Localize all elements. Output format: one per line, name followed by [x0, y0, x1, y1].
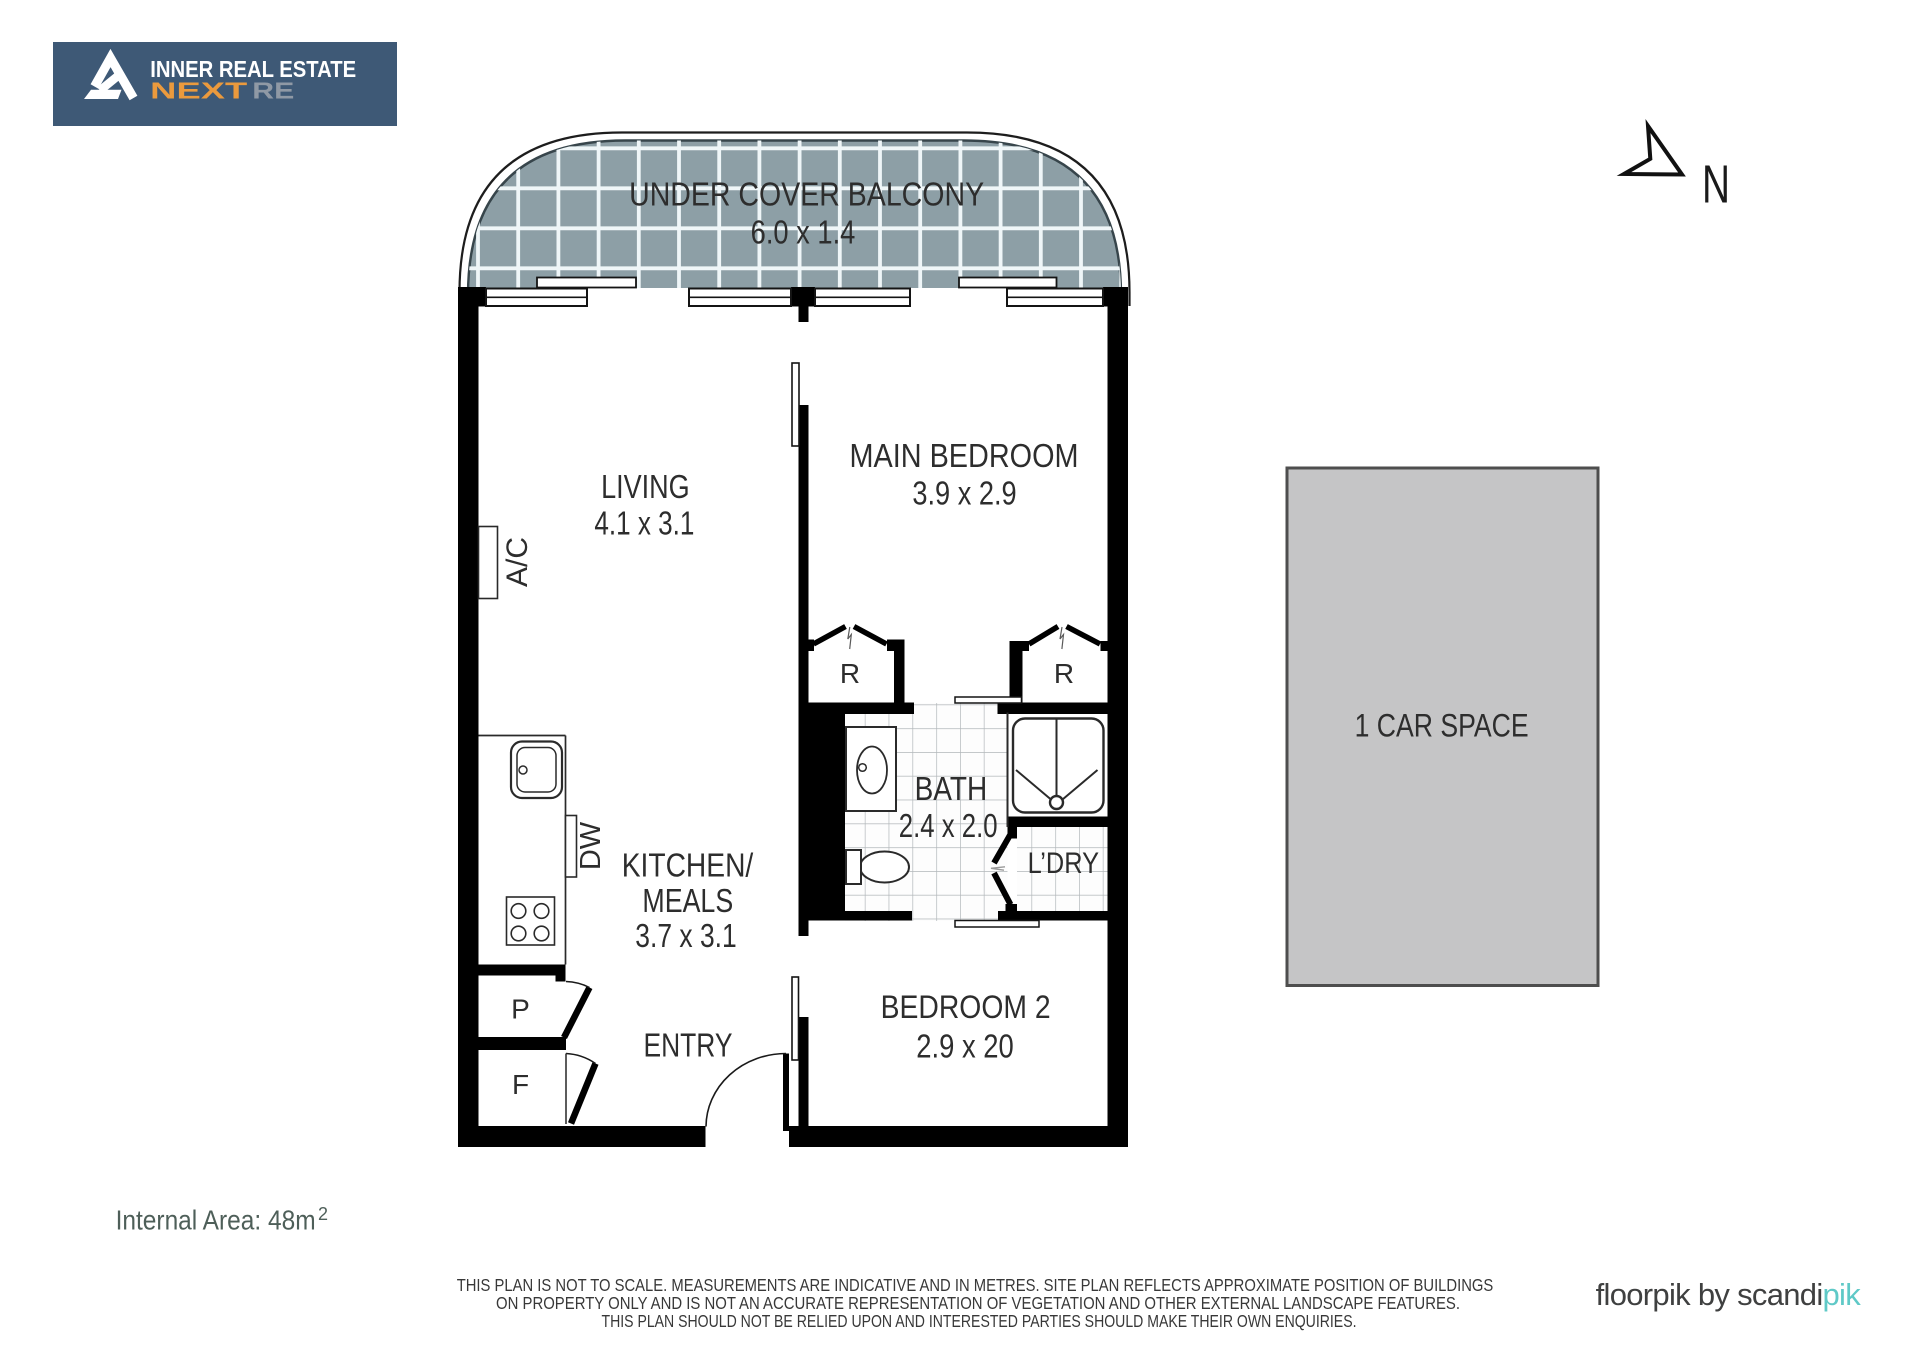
svg-text:R: R: [840, 658, 860, 689]
svg-text:4.1 x 3.1: 4.1 x 3.1: [594, 504, 694, 541]
svg-text:R: R: [1054, 658, 1074, 689]
svg-text:ON PROPERTY ONLY AND IS NOT AN: ON PROPERTY ONLY AND IS NOT AN ACCURATE …: [496, 1293, 1460, 1313]
svg-text:3.9 x 2.9: 3.9 x 2.9: [912, 474, 1016, 511]
svg-text:A/C: A/C: [501, 537, 534, 587]
svg-text:F: F: [512, 1069, 529, 1100]
svg-text:LIVING: LIVING: [601, 468, 690, 505]
svg-text:BATH: BATH: [915, 770, 988, 807]
svg-text:RE: RE: [252, 78, 294, 104]
svg-text:BEDROOM 2: BEDROOM 2: [881, 989, 1051, 1025]
svg-text:1 CAR SPACE: 1 CAR SPACE: [1355, 708, 1529, 744]
svg-text:P: P: [511, 993, 530, 1024]
svg-text:floorpik by scandipik: floorpik by scandipik: [1596, 1277, 1862, 1312]
svg-text:MAIN BEDROOM: MAIN BEDROOM: [850, 437, 1079, 474]
svg-text:DW: DW: [575, 821, 607, 870]
svg-text:3.7 x 3.1: 3.7 x 3.1: [635, 917, 736, 954]
svg-text:THIS PLAN IS NOT TO SCALE. MEA: THIS PLAN IS NOT TO SCALE. MEASUREMENTS …: [457, 1275, 1494, 1295]
svg-text:ENTRY: ENTRY: [644, 1027, 733, 1064]
svg-text:N: N: [1702, 155, 1730, 215]
svg-text:2.9 x 20: 2.9 x 20: [916, 1028, 1014, 1065]
svg-text:2.4 x 2.0: 2.4 x 2.0: [899, 807, 998, 844]
svg-text:THIS PLAN SHOULD NOT BE RELIED: THIS PLAN SHOULD NOT BE RELIED UPON AND …: [602, 1311, 1357, 1331]
svg-text:6.0 x 1.4: 6.0 x 1.4: [751, 214, 856, 251]
svg-text:NEXT: NEXT: [150, 78, 247, 104]
svg-text:2: 2: [318, 1204, 328, 1224]
svg-text:MEALS: MEALS: [642, 882, 733, 919]
svg-text:UNDER COVER BALCONY: UNDER COVER BALCONY: [629, 175, 984, 212]
svg-text:KITCHEN/: KITCHEN/: [622, 847, 754, 884]
svg-text:L’DRY: L’DRY: [1028, 847, 1099, 880]
svg-text:Internal Area: 48m: Internal Area: 48m: [116, 1204, 316, 1235]
